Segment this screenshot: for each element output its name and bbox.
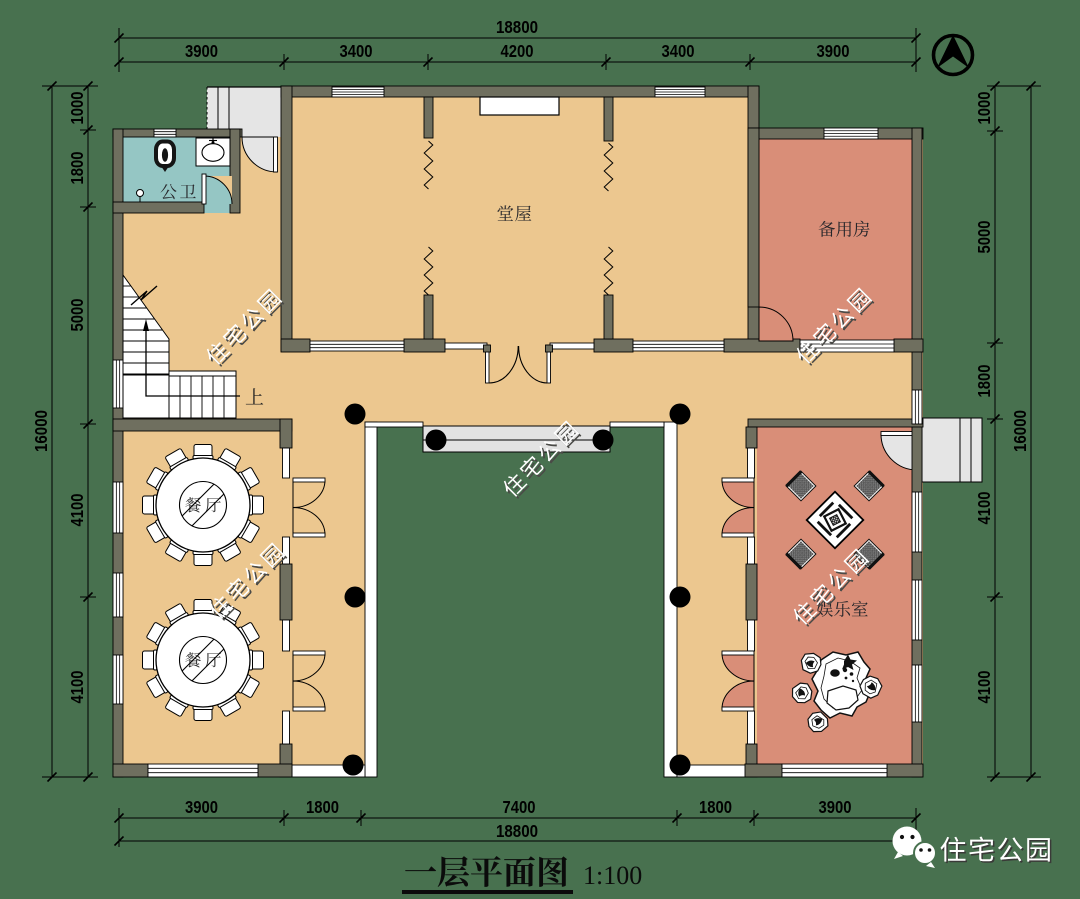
svg-text:4100: 4100	[67, 670, 87, 703]
svg-text:1800: 1800	[699, 797, 732, 817]
svg-text:3900: 3900	[185, 797, 218, 817]
svg-text:1000: 1000	[67, 91, 87, 124]
svg-text:18800: 18800	[496, 17, 538, 37]
svg-text:16000: 16000	[31, 410, 51, 452]
svg-text:4100: 4100	[974, 491, 994, 524]
svg-text:1:100: 1:100	[583, 861, 642, 890]
svg-text:1800: 1800	[67, 151, 87, 184]
svg-text:5000: 5000	[974, 220, 994, 253]
svg-text:16000: 16000	[1010, 410, 1030, 452]
svg-text:4200: 4200	[501, 41, 534, 61]
svg-text:18800: 18800	[496, 821, 538, 841]
svg-text:5000: 5000	[67, 298, 87, 331]
svg-text:4100: 4100	[974, 670, 994, 703]
svg-text:3400: 3400	[662, 41, 695, 61]
svg-text:1800: 1800	[974, 364, 994, 397]
svg-text:1800: 1800	[306, 797, 339, 817]
svg-text:3900: 3900	[819, 797, 852, 817]
svg-text:7400: 7400	[503, 797, 536, 817]
svg-text:4100: 4100	[67, 493, 87, 526]
svg-text:3900: 3900	[185, 41, 218, 61]
svg-text:3900: 3900	[817, 41, 850, 61]
svg-text:1000: 1000	[974, 91, 994, 124]
svg-text:3400: 3400	[340, 41, 373, 61]
